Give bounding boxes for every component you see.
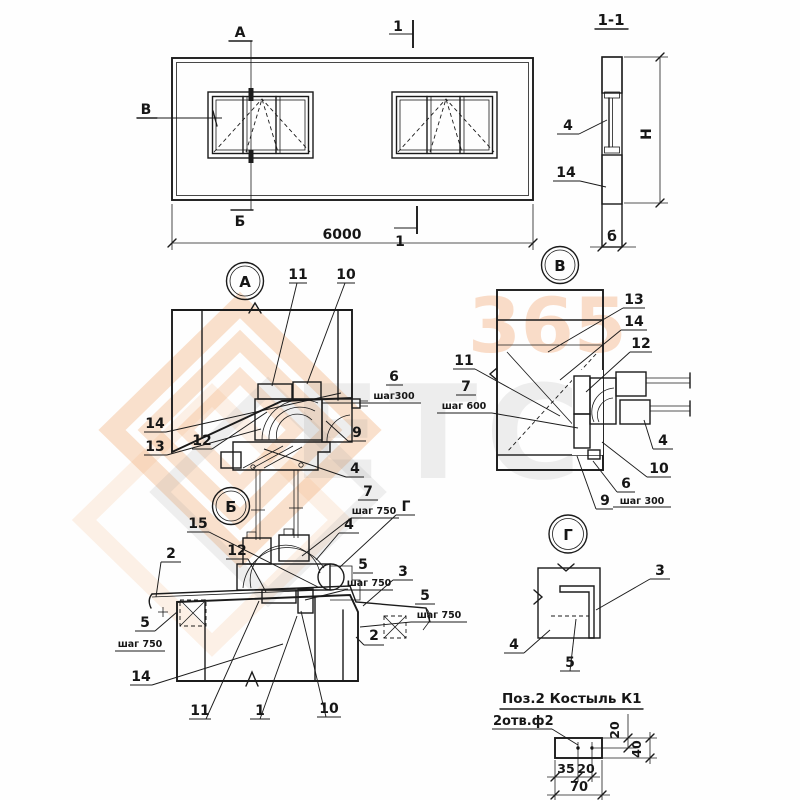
elevation-view: А Б В 1 1 6000 (137, 19, 537, 250)
svg-text:9: 9 (352, 425, 362, 441)
svg-text:шаг 750: шаг 750 (118, 639, 163, 650)
svg-text:4: 4 (563, 118, 573, 134)
window-1 (208, 92, 313, 158)
svg-text:4: 4 (658, 433, 668, 449)
svg-text:14: 14 (556, 165, 576, 181)
svg-text:7: 7 (461, 379, 471, 395)
svg-text:5: 5 (358, 557, 368, 573)
svg-text:6: 6 (389, 369, 399, 385)
svg-text:1: 1 (255, 703, 265, 719)
detail-g-view: Г 3 4 5 (504, 515, 670, 671)
svg-text:14: 14 (145, 416, 165, 432)
detail-a-bubble: А (227, 263, 264, 300)
pos2-part-drawing: Поз.2 Костыль К1 2отв.ф2 20 40 35 20 (492, 691, 657, 800)
construction-drawing: 365 ЕТС (0, 0, 800, 800)
drawing-sheet: 365 ЕТС (0, 0, 800, 800)
svg-text:12: 12 (631, 336, 650, 352)
pos2-dim-35: 35 (557, 761, 574, 776)
pos2-title: Поз.2 Костыль К1 (502, 691, 642, 707)
svg-text:13: 13 (624, 292, 643, 308)
detail-v-bubble: В (542, 247, 579, 284)
svg-text:4: 4 (509, 637, 519, 653)
cut-label-bottom: 1 (395, 234, 405, 250)
svg-text:14: 14 (624, 314, 644, 330)
cut-label-top: 1 (393, 19, 403, 35)
svg-text:10: 10 (649, 461, 669, 477)
detail-g-bubble: Г (549, 515, 587, 553)
pos2-dim-40: 40 (629, 740, 644, 758)
detail-g-callouts: 3 4 5 (504, 563, 670, 671)
dim-6000-value: 6000 (323, 227, 362, 243)
pos2-dim-20-bottom: 20 (577, 761, 595, 776)
svg-text:10: 10 (319, 701, 339, 717)
svg-text:2: 2 (166, 546, 176, 562)
svg-text:11: 11 (288, 267, 307, 283)
cut-mark-top: 1 (389, 19, 413, 48)
detail-a-title: А (239, 273, 251, 291)
svg-text:Г: Г (402, 499, 411, 515)
svg-text:7: 7 (363, 484, 373, 500)
dim-H-label: Н (639, 128, 655, 140)
svg-text:10: 10 (336, 267, 356, 283)
dim-b-label: б (607, 229, 617, 245)
section-1-1-view: 1-1 Н б 4 14 (553, 11, 668, 251)
detail-g-title: Г (563, 526, 573, 544)
svg-text:5: 5 (140, 615, 150, 631)
svg-text:3: 3 (655, 563, 665, 579)
watermark-letters: ЕТС (292, 357, 589, 509)
dimension-6000: 6000 (168, 204, 537, 250)
svg-text:шаг 750: шаг 750 (417, 610, 462, 621)
svg-text:2: 2 (369, 628, 379, 644)
section-1-1-title: 1-1 (597, 11, 624, 29)
svg-text:шаг 750: шаг 750 (352, 506, 397, 517)
svg-text:15: 15 (188, 516, 207, 532)
svg-text:13: 13 (145, 439, 164, 455)
section-label-a: А (235, 25, 246, 41)
detail-b-title: Б (225, 498, 236, 516)
svg-text:12: 12 (192, 433, 211, 449)
svg-text:3: 3 (398, 564, 408, 580)
view-pointer-v: В (137, 102, 222, 126)
pos2-dim-70: 70 (570, 780, 588, 795)
svg-text:шаг300: шаг300 (373, 391, 415, 402)
svg-text:11: 11 (454, 353, 473, 369)
svg-text:5: 5 (420, 588, 430, 604)
view-label-v: В (141, 102, 152, 118)
section-callout-4: 4 (557, 118, 607, 134)
svg-text:4: 4 (350, 461, 360, 477)
svg-text:шаг 600: шаг 600 (442, 401, 487, 412)
detail-v-title: В (554, 257, 565, 275)
pos2-dim-20-top: 20 (607, 721, 622, 739)
dimension-height-H: Н (624, 53, 668, 207)
svg-text:14: 14 (131, 669, 151, 685)
svg-text:4: 4 (344, 517, 354, 533)
window-2 (392, 92, 497, 158)
pos2-holes-note: 2отв.ф2 (493, 714, 554, 729)
svg-text:6: 6 (621, 476, 631, 492)
svg-text:9: 9 (600, 493, 610, 509)
section-callout-14: 14 (553, 165, 606, 187)
svg-text:12: 12 (227, 543, 246, 559)
svg-text:шаг 300: шаг 300 (620, 496, 665, 507)
section-label-b: Б (235, 214, 246, 230)
